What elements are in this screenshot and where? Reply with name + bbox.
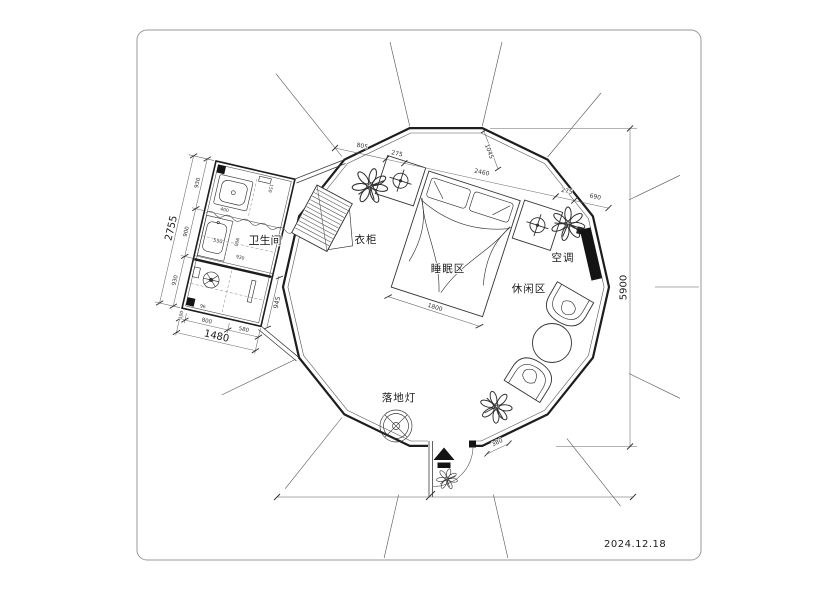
coffee-table xyxy=(533,324,572,363)
label-floor-lamp: 落地灯 xyxy=(382,391,417,404)
date-label: 2024.12.18 xyxy=(604,539,666,550)
label-bathroom: 卫生间 xyxy=(249,233,282,247)
dim-overall-height: 5900 xyxy=(619,275,630,300)
label-leisure-area: 休闲区 xyxy=(512,282,547,295)
floor-plan-drawing: 150 400 550 900 930 96 xyxy=(0,0,837,592)
door-jamb xyxy=(469,441,476,448)
label-wardrobe: 衣柜 xyxy=(355,233,378,246)
label-air-conditioner: 空调 xyxy=(552,251,575,264)
label-sleeping-area: 睡眠区 xyxy=(431,262,466,275)
floor-plan-page: 150 400 550 900 930 96 xyxy=(0,0,837,592)
